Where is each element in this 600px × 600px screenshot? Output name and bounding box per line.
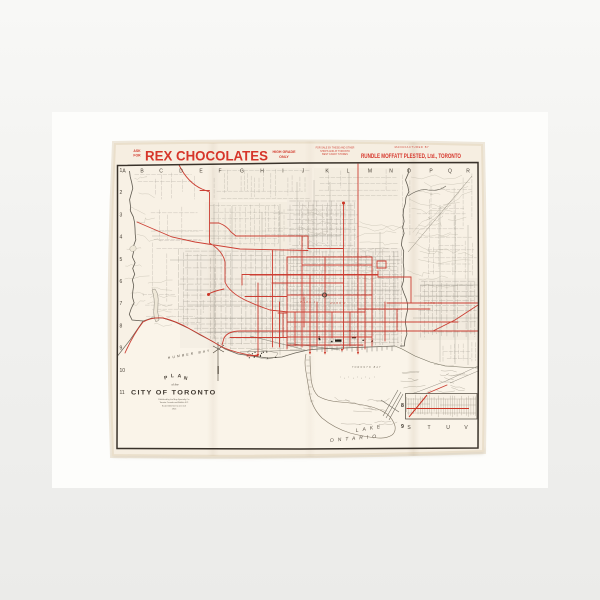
svg-text:FOR: FOR — [133, 154, 141, 158]
svg-text:HIGH GRADE: HIGH GRADE — [273, 150, 297, 154]
svg-text:6: 6 — [120, 279, 123, 285]
svg-text:H: H — [260, 168, 264, 174]
svg-text:C: C — [159, 168, 163, 174]
svg-text:Q: Q — [448, 168, 452, 174]
svg-text:F: F — [218, 168, 221, 174]
svg-text:11: 11 — [120, 390, 125, 396]
svg-text:5: 5 — [120, 257, 123, 263]
svg-text:WARD 4: WARD 4 — [300, 300, 316, 304]
svg-text:Scale 1600 feet to one inch: Scale 1600 feet to one inch — [162, 404, 186, 407]
svg-text:4: 4 — [120, 235, 123, 241]
svg-text:D: D — [179, 168, 183, 174]
svg-text:U: U — [446, 425, 450, 431]
svg-text:WARD IX: WARD IX — [424, 301, 442, 305]
svg-text:G: G — [240, 168, 244, 174]
svg-text:10: 10 — [120, 368, 126, 374]
svg-text:2: 2 — [120, 190, 123, 196]
svg-text:9: 9 — [401, 424, 404, 430]
svg-text:ONLY: ONLY — [279, 155, 289, 159]
svg-text:ASK: ASK — [133, 149, 141, 153]
svg-text:N: N — [389, 168, 393, 174]
svg-text:8: 8 — [120, 323, 123, 329]
svg-text:WARD 2: WARD 2 — [330, 301, 346, 305]
svg-text:3: 3 — [120, 212, 123, 218]
svg-text:1: 1 — [120, 168, 123, 174]
svg-text:9: 9 — [120, 346, 123, 352]
svg-text:RUNDLE MOFFATT PLESTED, Ltd.,: RUNDLE MOFFATT PLESTED, Ltd., TORONTO — [361, 153, 461, 160]
svg-text:R: R — [466, 168, 470, 174]
svg-text:REX CHOCOLATES: REX CHOCOLATES — [145, 149, 268, 164]
svg-text:L: L — [347, 168, 350, 174]
svg-text:of the: of the — [172, 383, 179, 387]
svg-text:Toronto Canada and Buffalo N.Y: Toronto Canada and Buffalo N.Y. — [159, 401, 189, 404]
svg-text:MANUFACTURED BY: MANUFACTURED BY — [395, 145, 430, 149]
svg-text:CITY OF TORONTO: CITY OF TORONTO — [131, 390, 217, 397]
svg-text:T: T — [427, 425, 430, 431]
svg-text:7: 7 — [120, 301, 123, 307]
svg-text:BEST CANDY STORES: BEST CANDY STORES — [322, 153, 348, 156]
svg-text:O: O — [407, 168, 411, 174]
svg-text:I: I — [282, 168, 283, 174]
svg-text:M: M — [368, 168, 372, 174]
svg-text:L: L — [171, 373, 175, 379]
svg-text:8: 8 — [401, 403, 404, 409]
svg-text:TORONTO BAY: TORONTO BAY — [352, 366, 382, 369]
svg-text:Published by the Map Specialty: Published by the Map Specialty Co. — [158, 398, 190, 401]
